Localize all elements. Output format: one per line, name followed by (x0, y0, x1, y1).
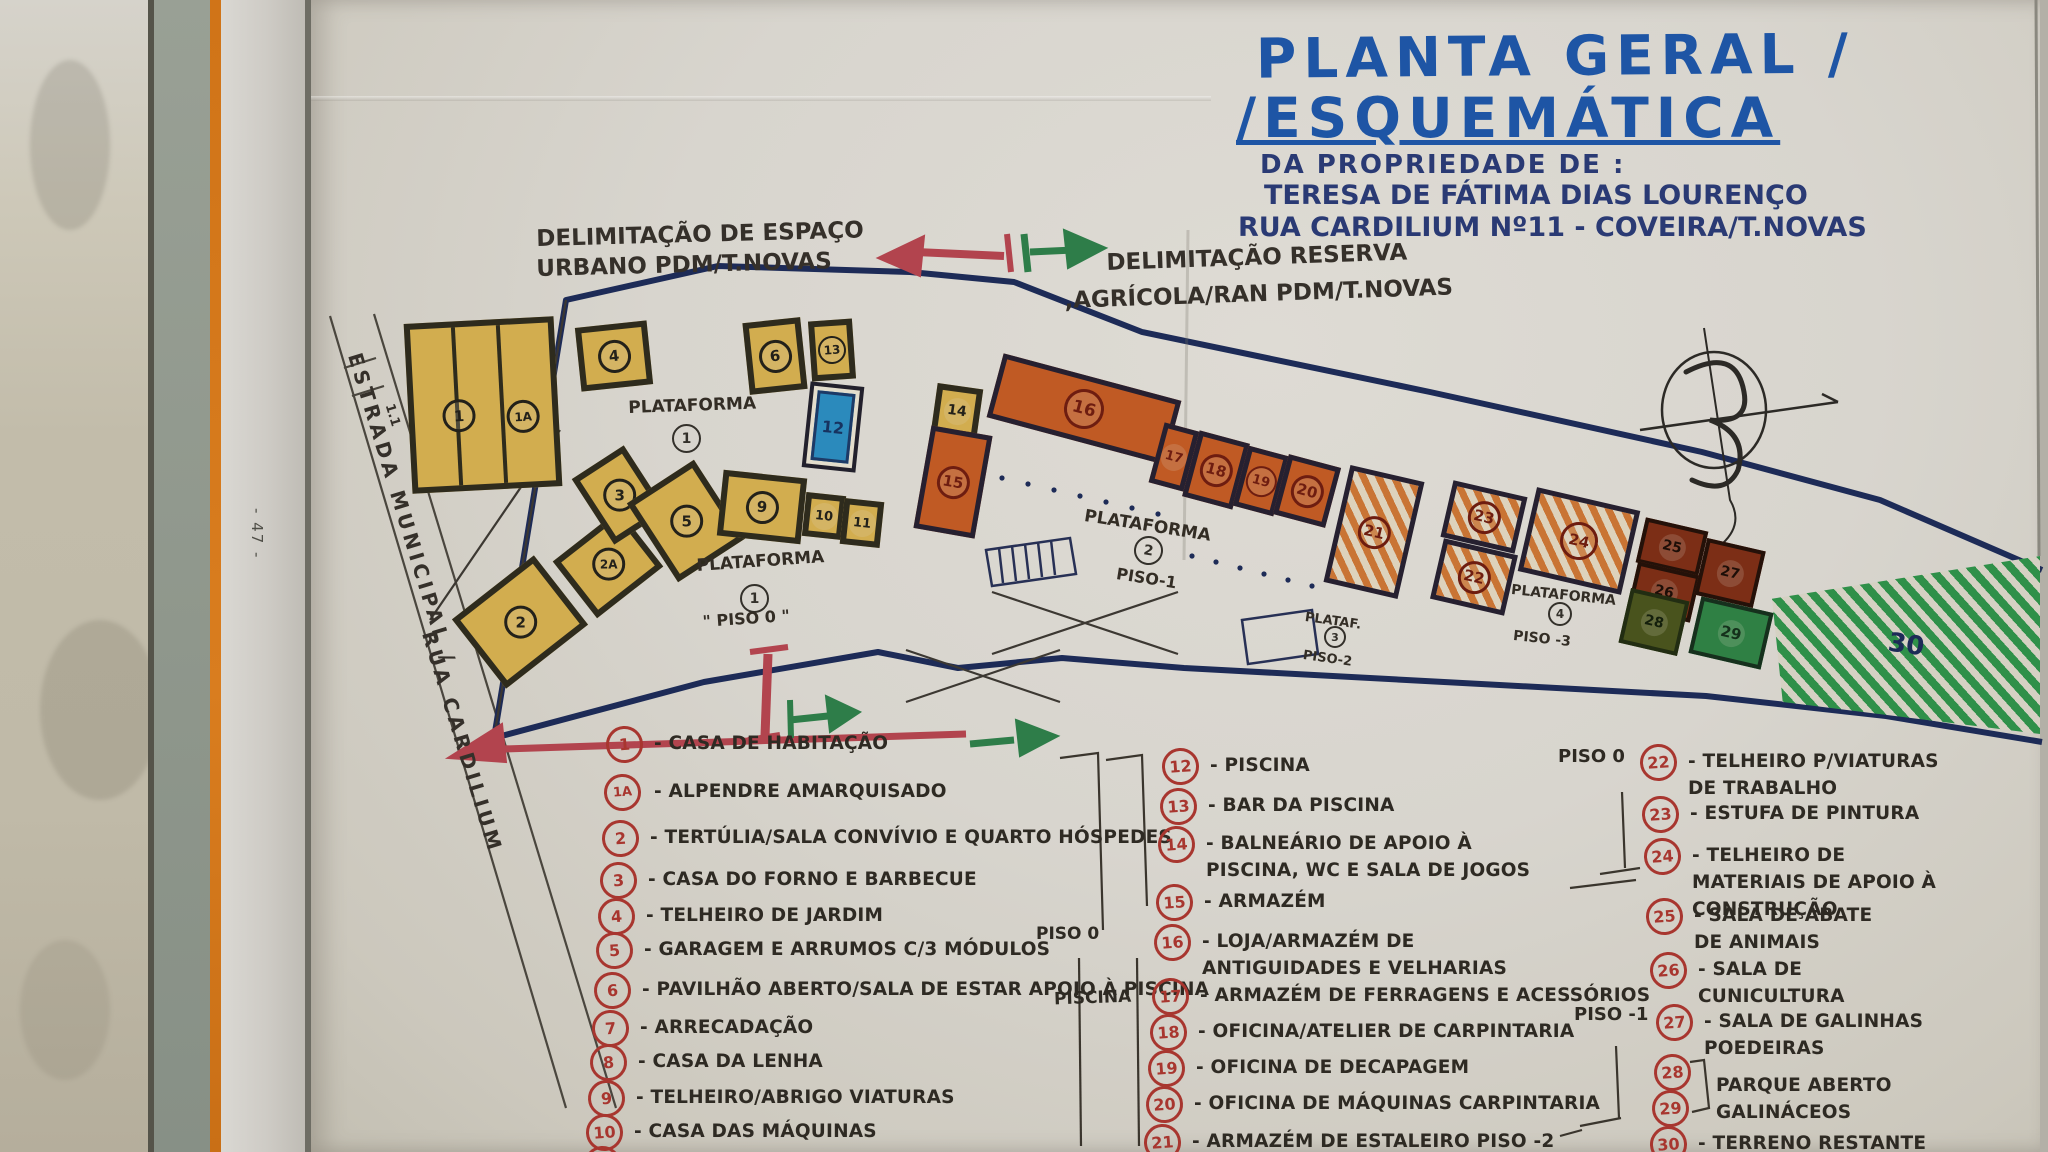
legend-label: - CASA DAS MÁQUINAS (634, 1118, 877, 1145)
building-number: 1 (442, 398, 477, 433)
building-number: 21 (1354, 512, 1394, 552)
building-13: 13 (808, 319, 856, 382)
legend-label: - CASA DO FORNO E BARBECUE (648, 866, 977, 893)
legend-label: - ESTUFA DE PINTURA (1690, 800, 1919, 827)
building-number: 15 (934, 463, 972, 501)
paper-crease (311, 96, 1211, 101)
building-number: 4 (596, 338, 632, 374)
building-number: 12 (821, 416, 845, 437)
building-number: 17 (1158, 441, 1190, 474)
building-number: 16 (1060, 385, 1109, 434)
legend-label: - ARMAZÉM (1204, 888, 1326, 915)
building-number: 22 (1454, 557, 1494, 597)
floor-label-piso0: PISO 0 (1036, 924, 1099, 944)
building-number: 18 (1196, 450, 1236, 490)
marble-vein (30, 60, 110, 230)
photographed-site-plan: - 47 - (0, 0, 2048, 1152)
legend-label: - SALA DE ABATE DE ANIMAIS (1694, 902, 1884, 956)
title-subtitle: DA PROPRIEDADE DE : (1260, 150, 1625, 180)
marble-vein (20, 940, 110, 1080)
building-number: 24 (1556, 518, 1602, 564)
legend-label: - CASA DE HABITAÇÃO (654, 730, 888, 757)
building-number: 27 (1714, 557, 1746, 589)
legend-label: - TELHEIRO P/VIATURAS DE TRABALHO (1688, 748, 1940, 802)
building-11: 11 (840, 498, 885, 548)
legend-label: - TERTÚLIA/SALA CONVÍVIO E QUARTO HÓSPED… (650, 824, 1172, 851)
building-9: 9 (717, 470, 807, 544)
paper-right-edge (2040, 0, 2048, 1152)
building-number: 1A (506, 399, 541, 434)
legend-label: - TELHEIRO/ABRIGO VIATURAS (636, 1084, 955, 1111)
legend-label: - LOJA/ARMAZÉM DE ANTIGUIDADES E VELHARI… (1202, 928, 1572, 982)
building-number: 29 (1715, 617, 1747, 649)
building-12-pool: 12 (802, 381, 865, 472)
platform-3-number: 3 (1324, 626, 1346, 648)
legend-label: - TELHEIRO DE JARDIM (646, 902, 883, 929)
building-divider (495, 325, 507, 483)
legend-label: - TERRENO RESTANTE (1698, 1130, 1926, 1152)
marble-vein (40, 620, 160, 800)
legend-label: - SALA DE CUNICULTURA (1698, 956, 1858, 1010)
legend-label: - ARRECADAÇÃO (640, 1014, 813, 1041)
legend-label: - SALA DE GALINHAS POEDEIRAS (1704, 1008, 1924, 1062)
page-title-line2: /ESQUEMÁTICA (1236, 86, 1780, 150)
legend-label: - GARAGEM E ARRUMOS C/3 MÓDULOS (644, 936, 1050, 963)
folder-orange-edge (210, 0, 221, 1152)
building-number: 2 (504, 606, 537, 639)
legend-label: - PISCINA (1210, 752, 1310, 779)
building-1-block: 1 1A (404, 316, 563, 494)
legend-label: - BALNEÁRIO DE APOIO À PISCINA, WC E SAL… (1206, 830, 1536, 884)
building-number: 28 (1638, 606, 1670, 638)
building-number: 10 (809, 501, 839, 531)
legend-label: - OFICINA DE MÁQUINAS CARPINTARIA (1194, 1090, 1600, 1117)
page-stack-edge (221, 0, 305, 1152)
floor-label-piso0-col3: PISO 0 (1558, 746, 1625, 767)
floor-label-piscina: PISCINA (1054, 987, 1132, 1010)
legend-label-pair: PARQUE ABERTO GALINÁCEOS (1716, 1072, 1906, 1126)
building-number: 5 (670, 505, 703, 538)
property-address: RUA CARDILIUM Nº11 - COVEIRA/T.NOVAS (1238, 212, 1867, 243)
building-number: 20 (1287, 471, 1327, 511)
page-number: - 47 - (248, 508, 266, 559)
binder-gray-strip (154, 0, 210, 1152)
building-number: 11 (847, 508, 877, 538)
legend-label: - OFICINA DE DECAPAGEM (1196, 1054, 1469, 1081)
building-4: 4 (575, 320, 653, 391)
building-number: 25 (1656, 531, 1688, 563)
legend-label: - ALPENDRE AMARQUISADO (654, 778, 947, 805)
building-10: 10 (802, 492, 846, 540)
legend-label: - BAR DA PISCINA (1208, 792, 1395, 819)
building-number: 2A (592, 548, 625, 581)
building-number: 13 (817, 335, 847, 365)
legend-label: - ARMAZÉM DE ESTALEIRO PISO -2 (1192, 1128, 1554, 1152)
building-number: 6 (757, 338, 793, 374)
building-number: 23 (1464, 497, 1504, 537)
page-title: PLANTA GERAL / (1256, 21, 1855, 90)
floor-label-piso-1: PISO -1 (1574, 1004, 1648, 1025)
building-number: 19 (1242, 462, 1280, 500)
area-number: 30 (1886, 628, 1926, 663)
legend-label: - CASA DA LENHA (638, 1048, 823, 1075)
owner-name: TERESA DE FÁTIMA DIAS LOURENÇO (1264, 180, 1808, 211)
pool-water: 12 (810, 390, 855, 464)
building-number: 14 (942, 396, 972, 426)
legend-label: - OFICINA/ATELIER DE CARPINTARIA (1198, 1018, 1574, 1045)
building-6: 6 (742, 317, 807, 395)
platform-1-number: 1 (672, 424, 701, 453)
building-number: 9 (744, 489, 780, 525)
platform-4-number: 4 (1548, 602, 1572, 626)
